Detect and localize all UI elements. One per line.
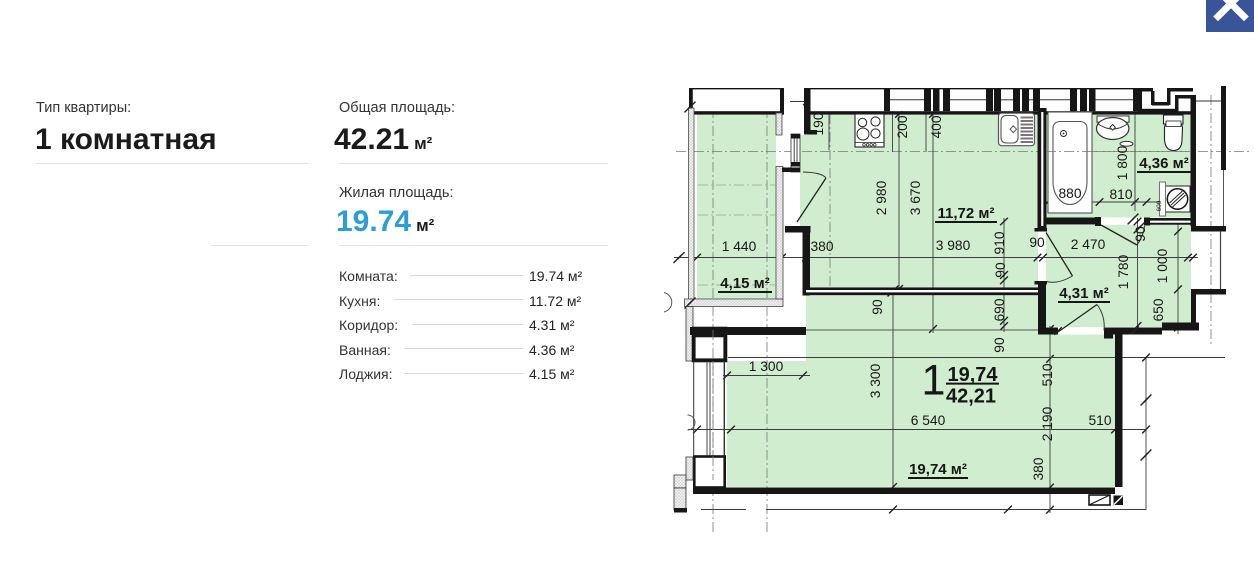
- svg-text:42,21: 42,21: [946, 386, 996, 408]
- svg-text:90: 90: [992, 337, 1007, 353]
- svg-text:4,36 м²: 4,36 м²: [1139, 155, 1188, 172]
- svg-text:4,15 м²: 4,15 м²: [720, 275, 769, 292]
- svg-text:880: 880: [1058, 186, 1081, 201]
- svg-text:90: 90: [1029, 235, 1045, 250]
- svg-text:1 800: 1 800: [1115, 145, 1130, 180]
- svg-text:380: 380: [810, 239, 833, 254]
- svg-text:2 980: 2 980: [874, 180, 889, 215]
- svg-text:510: 510: [1040, 363, 1055, 386]
- svg-text:6 540: 6 540: [911, 413, 946, 428]
- svg-text:400: 400: [929, 115, 944, 138]
- svg-text:2 190: 2 190: [1040, 406, 1055, 441]
- svg-text:4,31 м²: 4,31 м²: [1059, 285, 1108, 302]
- svg-text:380: 380: [1031, 457, 1046, 480]
- svg-text:3 670: 3 670: [908, 180, 923, 215]
- svg-text:19,74 м²: 19,74 м²: [909, 461, 967, 478]
- svg-text:1 440: 1 440: [722, 239, 757, 254]
- svg-text:11,72 м²: 11,72 м²: [938, 205, 995, 222]
- svg-text:510: 510: [1088, 413, 1111, 428]
- svg-text:200: 200: [895, 115, 910, 138]
- svg-text:90: 90: [1133, 226, 1148, 242]
- svg-text:90: 90: [870, 299, 885, 315]
- svg-text:810: 810: [1109, 187, 1132, 202]
- svg-text:1: 1: [922, 357, 946, 405]
- svg-text:90: 90: [993, 262, 1008, 278]
- svg-text:650: 650: [1151, 298, 1166, 321]
- svg-text:600: 600: [1156, 200, 1163, 211]
- svg-text:2 470: 2 470: [1071, 237, 1106, 252]
- svg-text:1 000: 1 000: [1155, 248, 1170, 283]
- svg-text:1 780: 1 780: [1116, 254, 1131, 289]
- svg-text:190: 190: [811, 112, 826, 135]
- svg-text:3 300: 3 300: [868, 363, 883, 398]
- svg-text:1 300: 1 300: [749, 359, 784, 374]
- svg-text:3 980: 3 980: [936, 238, 971, 253]
- svg-text:690: 690: [992, 298, 1007, 321]
- svg-text:910: 910: [992, 231, 1007, 254]
